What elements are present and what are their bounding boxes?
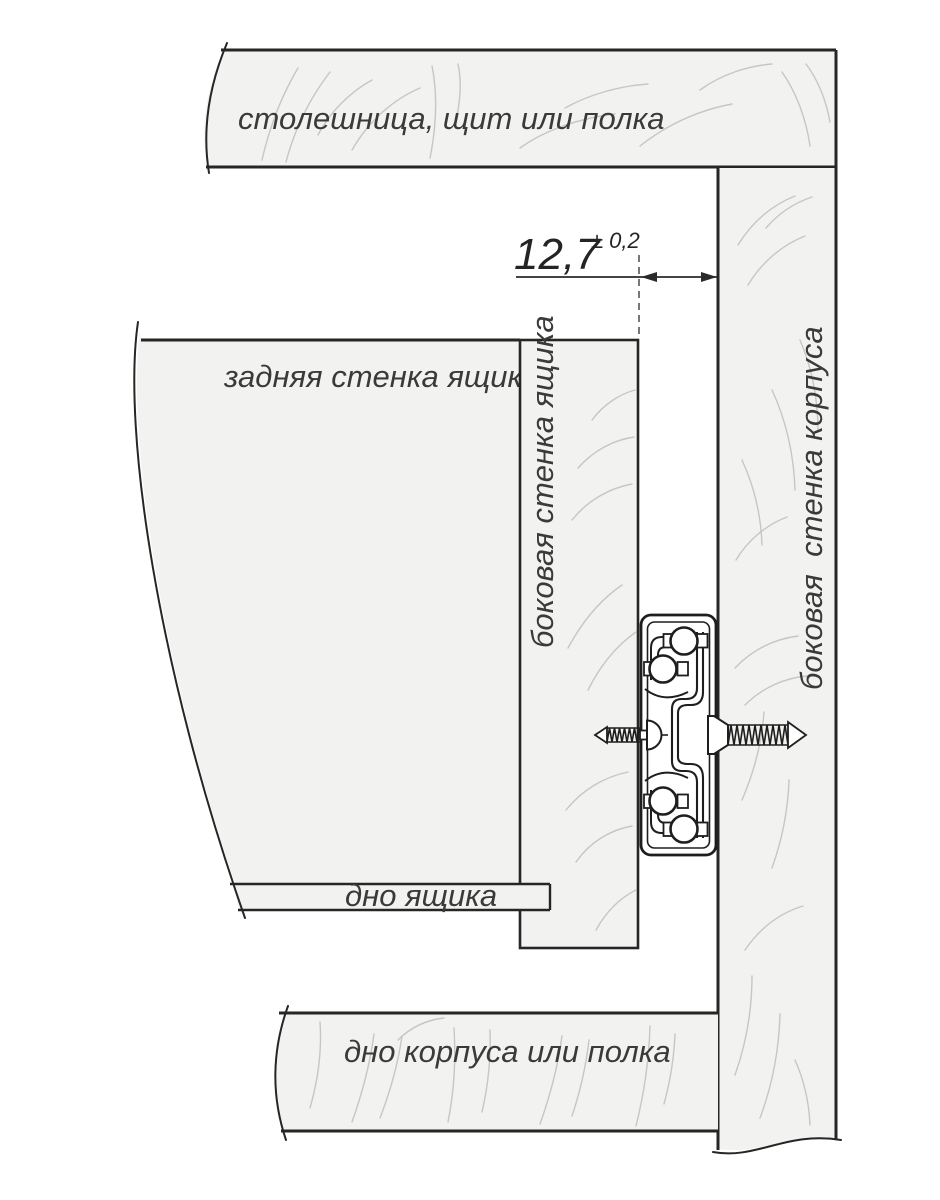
top-panel: столешница, щит или полка <box>204 43 836 173</box>
ball-bearing <box>650 656 677 683</box>
cabinet-bottom-label: дно корпуса или полка <box>344 1034 671 1069</box>
top-panel-label: столешница, щит или полка <box>238 101 664 136</box>
drawer-side-label: боковая стенка ящика <box>525 315 560 648</box>
drawer-back-panel: задняя стенка ящика <box>137 332 539 910</box>
cabinet-bottom-panel: дно корпуса или полка <box>275 1006 718 1140</box>
ball-cage-tab <box>678 795 689 809</box>
cabinet-side-panel: боковая стенка корпуса <box>713 167 841 1153</box>
drawer-side-panel: боковая стенка ящика <box>520 315 638 948</box>
drawer-bottom-strip: дно ящика <box>230 878 550 913</box>
cabinet-side-label: боковая стенка корпуса <box>794 326 829 690</box>
ball-bearing <box>650 788 677 815</box>
ball-bearing <box>671 628 698 655</box>
drawer-bottom-label: дно ящика <box>345 878 497 913</box>
drawer-slide-installation-diagram: столешница, щит или полка боковая стенка… <box>0 0 940 1200</box>
dimension-arrow-right <box>701 272 717 282</box>
drawer-back-label: задняя стенка ящика <box>223 359 539 394</box>
diagram-canvas: столешница, щит или полка боковая стенка… <box>0 0 940 1200</box>
dimension-tolerance: ± 0,2 <box>591 228 640 253</box>
ball-bearing <box>671 816 698 843</box>
ball-cage-tab <box>678 662 689 676</box>
dimension-value: 12,7 <box>514 230 601 279</box>
dimension-arrow-left <box>641 272 657 282</box>
screw-shank <box>640 731 647 740</box>
